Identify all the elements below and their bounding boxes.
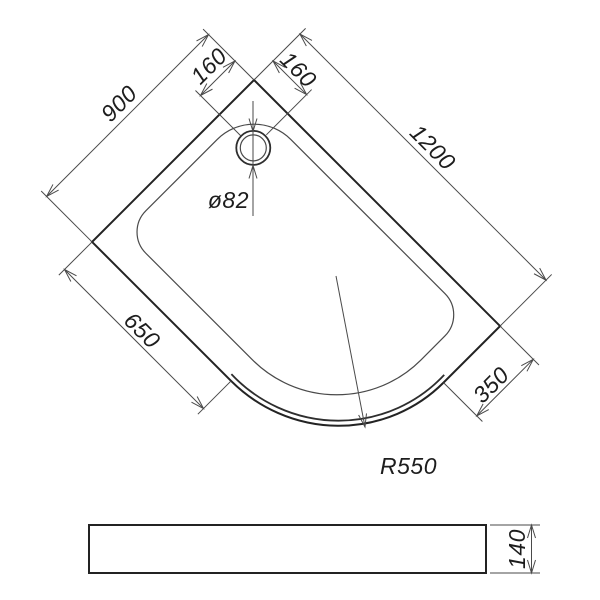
dim-drain-offset-right-160: 160 (233, 43, 325, 135)
plan-view: 900 160 1200 160 (0, 0, 600, 560)
dim-label-r550: R550 (380, 453, 437, 479)
tray-front-inner-edge (231, 268, 444, 481)
dim-label-650: 650 (119, 307, 166, 354)
dim-label-140: 140 (504, 529, 530, 569)
shower-tray-technical-drawing: 900 160 1200 160 (0, 0, 600, 600)
extension-line (198, 381, 231, 414)
dim-label-drain-diameter: ø82 (208, 187, 249, 213)
radius-leader-line (336, 276, 365, 427)
tray-floor-contour (125, 103, 467, 445)
extension-line (500, 326, 539, 365)
dim-label-160-left: 160 (185, 43, 232, 90)
dim-label-350: 350 (468, 361, 515, 408)
dim-height-140: 140 (490, 525, 540, 573)
extension-line (41, 191, 92, 242)
side-view: 140 (89, 525, 540, 573)
drawing-canvas: 900 160 1200 160 (0, 0, 600, 600)
dim-label-160-right: 160 (275, 46, 322, 93)
extension-line (195, 90, 240, 135)
extension-line (500, 274, 552, 326)
dimension-line (300, 34, 546, 280)
extension-line (266, 90, 311, 135)
dim-radius-r550: R550 (336, 276, 437, 479)
dim-label-900: 900 (96, 80, 143, 127)
dim-straight-edge-350: 350 (444, 326, 539, 421)
dim-straight-edge-650: 650 (59, 242, 231, 414)
side-profile-rect (89, 525, 486, 573)
extension-line (59, 242, 92, 275)
